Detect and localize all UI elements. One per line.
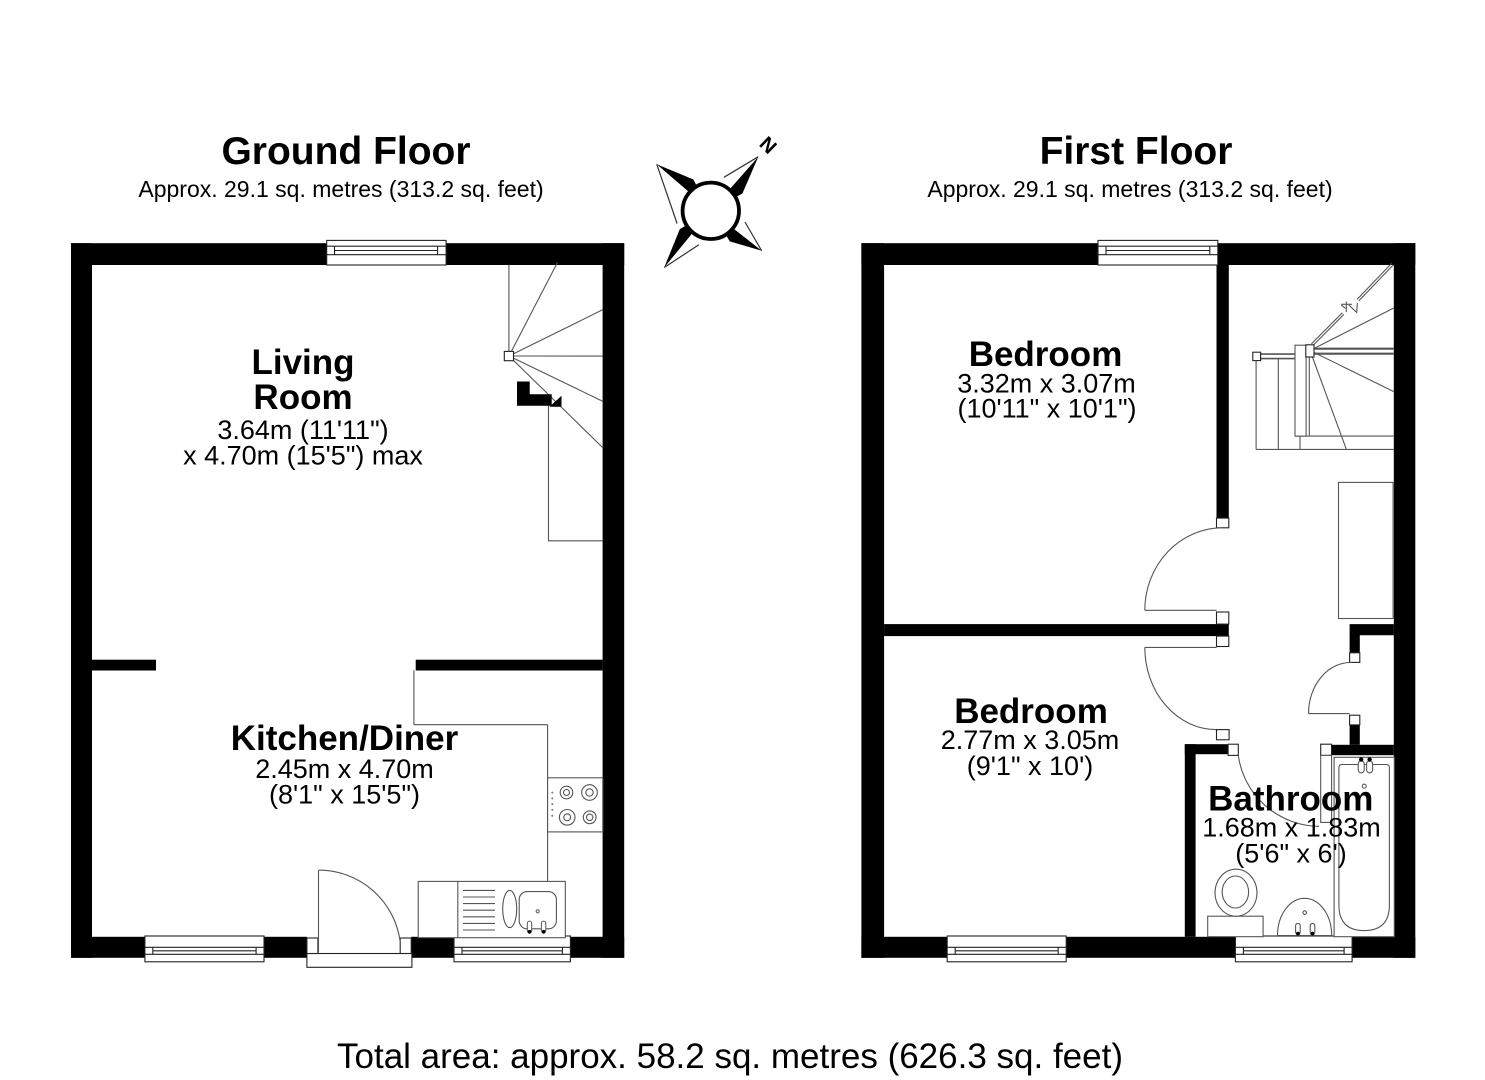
svg-text:Total area: approx. 58.2 sq. m: Total area: approx. 58.2 sq. metres (626…: [337, 1037, 1123, 1076]
svg-text:(10'11" x 10'1"): (10'11" x 10'1"): [957, 394, 1136, 424]
svg-text:Ground Floor: Ground Floor: [221, 130, 470, 173]
svg-text:(8'1" x 15'5"): (8'1" x 15'5"): [269, 780, 420, 810]
svg-text:(5'6" x 6'): (5'6" x 6'): [1235, 839, 1346, 869]
svg-text:Approx. 29.1 sq. metres (313.2: Approx. 29.1 sq. metres (313.2 sq. feet): [138, 176, 543, 202]
svg-text:Room: Room: [253, 378, 352, 417]
svg-text:(9'1" x 10'): (9'1" x 10'): [967, 751, 1093, 781]
svg-text:Living: Living: [251, 343, 354, 382]
svg-text:First Floor: First Floor: [1040, 130, 1233, 173]
svg-text:Approx. 29.1 sq. metres (313.2: Approx. 29.1 sq. metres (313.2 sq. feet): [927, 176, 1332, 202]
svg-text:x 4.70m (15'5") max: x 4.70m (15'5") max: [183, 441, 423, 471]
svg-text:Kitchen/Diner: Kitchen/Diner: [231, 719, 459, 758]
